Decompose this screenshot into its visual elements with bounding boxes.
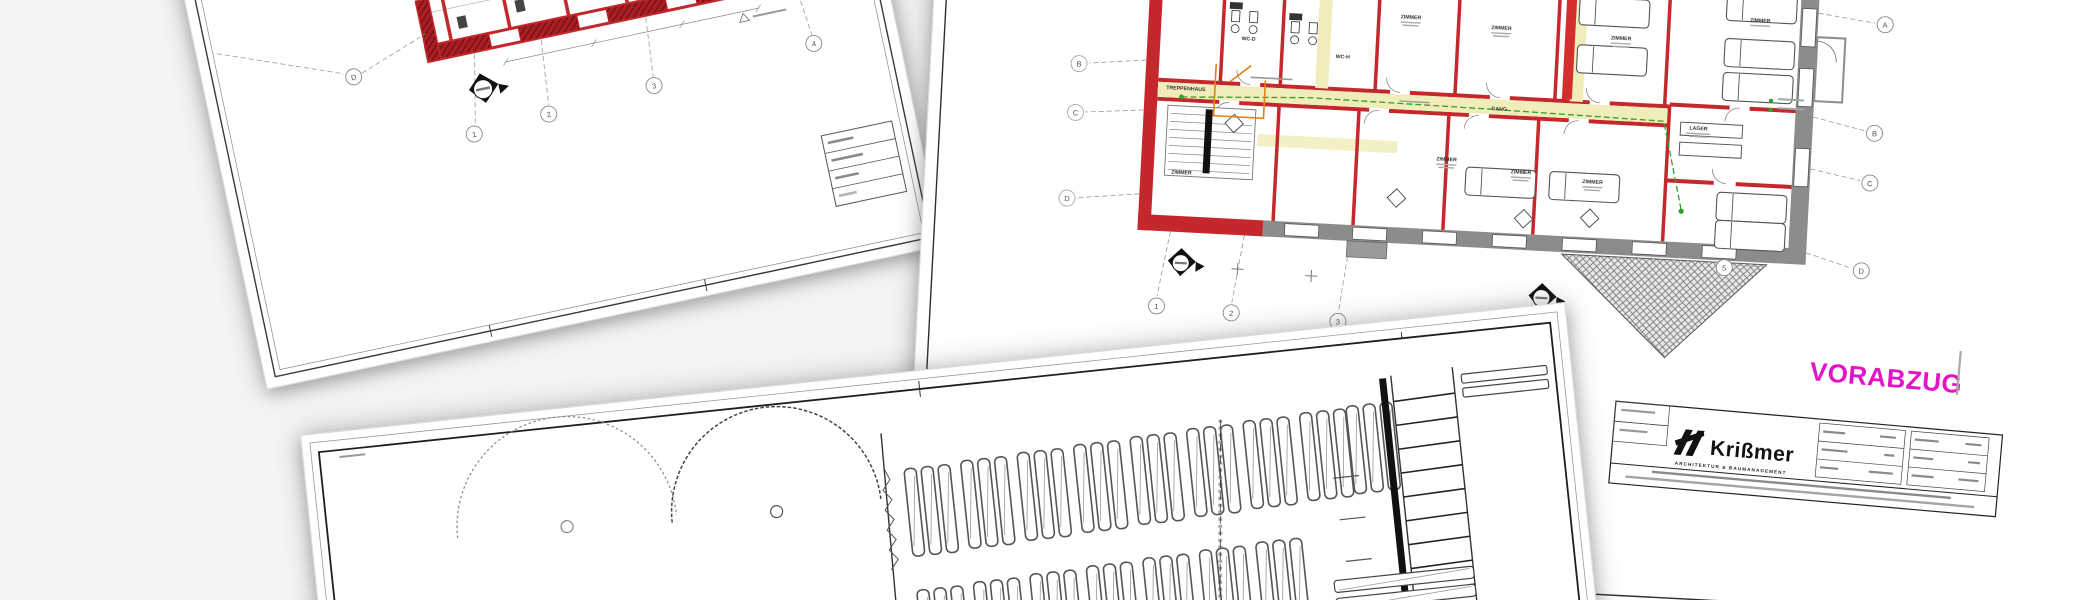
floor-plan-strip	[413, 0, 854, 62]
axis-bubble-C: C	[1861, 175, 1878, 192]
axis-bubble-5: 5	[1716, 259, 1733, 276]
room-label-lager: LAGER	[1689, 126, 1708, 133]
sheet-frame	[163, 0, 932, 383]
rack-row-top	[902, 402, 1402, 557]
axis-bubble-D: D	[1853, 262, 1870, 279]
svg-text:D: D	[1064, 194, 1070, 203]
room-label-zimmer: ZIMMER	[1750, 18, 1771, 25]
svg-text:C: C	[1073, 108, 1079, 117]
north-arrow-icon	[466, 68, 511, 106]
svg-text:5: 5	[1722, 263, 1727, 272]
room-label-zimmer: ZIMMER	[1491, 25, 1512, 32]
vorabzug-stamp: VORABZUG	[1809, 356, 1964, 399]
axis-bubble-1: 1	[1148, 298, 1165, 315]
svg-text:D: D	[1858, 267, 1864, 276]
axis-bubble-D-left: D	[1059, 190, 1076, 207]
svg-text:B: B	[1076, 59, 1081, 68]
door-swing-arcs	[446, 383, 910, 600]
svg-text:A: A	[1882, 21, 1887, 30]
svg-text:C: C	[1867, 179, 1873, 188]
room-label-zimmer: ZIMMER	[1436, 156, 1457, 163]
axis-bubble-D: D	[344, 67, 363, 86]
axis-bubble-2: 2	[1223, 304, 1240, 321]
title-block: Krißmer ARCHITEKTUR & BAUMANAGEMENT	[1609, 401, 2003, 517]
axis-bubble-1: 1	[465, 125, 484, 144]
room-label-zimmer: ZIMMER	[1511, 169, 1532, 176]
sheet-top-left-drawing: 1 2 3 4 D	[151, 0, 942, 389]
canopy-hatch	[1557, 254, 1767, 363]
svg-text:2: 2	[1229, 309, 1234, 318]
axis-bubble-B: B	[1866, 125, 1883, 142]
svg-text:B: B	[1872, 129, 1877, 138]
room-label-wc-h: WC-H	[1336, 54, 1351, 61]
sheet-top-left: 1 2 3 4 D	[150, 0, 944, 390]
axis-bubble-A: A	[1877, 16, 1894, 33]
room-label-zimmer: ZIMMER	[1401, 14, 1422, 21]
drawing-collage: 1 2 3 4 D	[0, 0, 2080, 600]
sun-protection-note	[738, 5, 787, 23]
room-label-zimmer: ZIMMER	[1582, 179, 1603, 186]
axis-bubble-2: 2	[539, 105, 558, 124]
entrance-marker-icon	[1167, 247, 1205, 277]
axis-bubble-4: 4	[804, 34, 823, 53]
room-label-zimmer: ZIMMER	[1611, 35, 1632, 42]
axis-bubble-C-left: C	[1067, 104, 1084, 121]
title-block-left-sheet	[821, 121, 906, 206]
axis-bubble-B-left: B	[1071, 55, 1088, 72]
furniture	[1220, 0, 1798, 252]
room-label-zimmer: ZIMMER	[1171, 170, 1192, 177]
axis-bubble-3: 3	[645, 76, 664, 95]
survey-cross-icon	[1231, 263, 1318, 282]
svg-text:1: 1	[1154, 302, 1159, 311]
room-label-wc-d: WC-D	[1241, 36, 1256, 43]
stair-ladder	[1379, 367, 1479, 600]
room-label-gang: GANG	[1491, 106, 1507, 113]
